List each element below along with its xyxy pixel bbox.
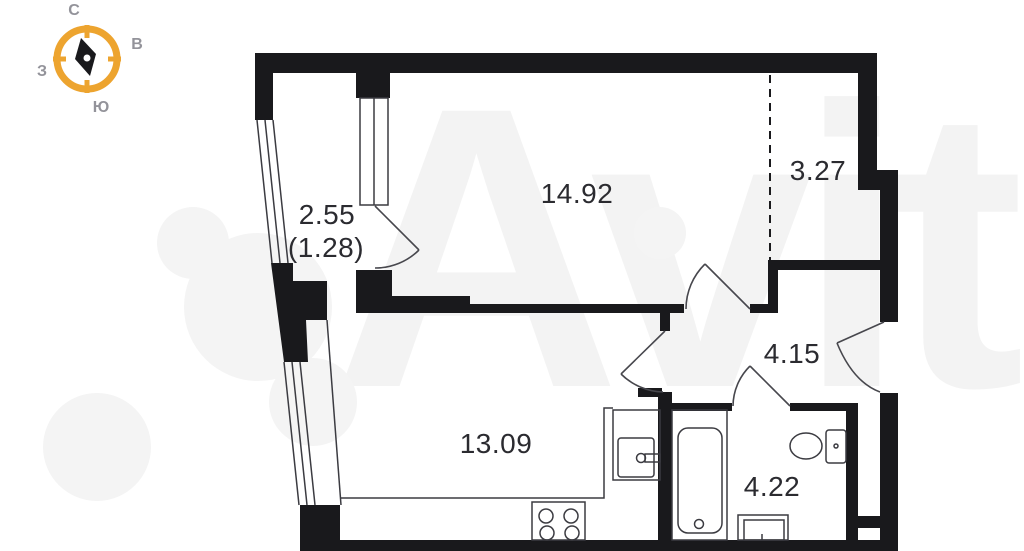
area-label-niche: 3.27 [790, 155, 847, 187]
wall-shaft-divider [846, 516, 898, 528]
door-arc [733, 366, 750, 406]
kitchen-sink [613, 410, 660, 480]
compass-label-east: В [131, 36, 143, 53]
wall-right-jog [858, 170, 898, 190]
floor-plan-drawing: С В З Ю [0, 0, 1024, 551]
kitchen-sink-faucet [637, 454, 646, 463]
door-leaf [621, 331, 665, 374]
bathroom-sink-basin [744, 520, 784, 540]
wall-balcony-mid-pier [271, 263, 327, 362]
bathtub-drain [695, 520, 704, 529]
wall-bottom [300, 540, 898, 551]
compass-needle-pivot [84, 55, 91, 62]
door-leaf [750, 366, 790, 406]
floor-plan-screenshot: Avito [0, 0, 1024, 551]
area-label-balcony: 2.55 [299, 199, 356, 231]
balcony-glazing-lower [284, 362, 315, 505]
wall-right-mid [880, 190, 898, 322]
area-label-kitchen: 13.09 [460, 428, 533, 460]
door-living-room [686, 264, 750, 309]
door-kitchen [621, 331, 665, 392]
toilet-bowl [790, 433, 822, 459]
kitchen-balcony-edge [327, 320, 341, 505]
door-entrance [837, 322, 884, 392]
area-label-bathroom: 4.22 [744, 471, 801, 503]
kitchen-sink-faucet-base [645, 454, 660, 462]
wall-room-kitchen-thin [470, 304, 684, 313]
door-leaf [705, 264, 750, 309]
door-leaf [837, 322, 884, 343]
compass-label-south: Ю [93, 99, 110, 116]
wall-balcony-top-left-pier [255, 73, 273, 120]
compass: С В З Ю [37, 2, 143, 116]
toilet [790, 430, 846, 463]
stove-burner [565, 526, 579, 540]
door-arc [837, 343, 880, 392]
wall-kitchen-door-stub [660, 313, 670, 331]
compass-label-north: С [68, 2, 80, 19]
stove-burner [539, 509, 553, 523]
compass-label-west: З [37, 63, 47, 80]
wall-top [255, 53, 877, 73]
bathroom-sink [738, 515, 788, 540]
area-label-living-room: 14.92 [541, 178, 614, 210]
wall-niche-bottom [770, 260, 880, 270]
wall-bath-right [846, 403, 858, 551]
area-label-balcony-reduced: (1.28) [288, 232, 364, 264]
bathtub-outline [672, 410, 727, 540]
door-balcony [375, 206, 419, 268]
door-arc [375, 250, 419, 268]
walls [255, 53, 898, 551]
bathtub [672, 410, 727, 540]
door-arc [686, 264, 705, 309]
wall-balcony-bottom-pier [356, 270, 392, 313]
door-leaf [375, 206, 419, 250]
toilet-tank [826, 430, 846, 463]
toilet-button [834, 444, 838, 448]
stove [532, 502, 585, 540]
stove-burner [540, 526, 554, 540]
kitchen-sink-outline [613, 410, 660, 480]
balcony-glazing-upper [257, 120, 288, 263]
stove-burner [564, 509, 578, 523]
wall-room-kitchen-thick [390, 296, 470, 313]
wall-balcony-room-pier [356, 73, 390, 98]
bathtub-basin [678, 428, 722, 533]
area-label-hallway: 4.15 [764, 338, 821, 370]
door-bathroom [733, 366, 790, 406]
wall-right-upper [858, 73, 877, 173]
bathroom-sink-outline [738, 515, 788, 540]
